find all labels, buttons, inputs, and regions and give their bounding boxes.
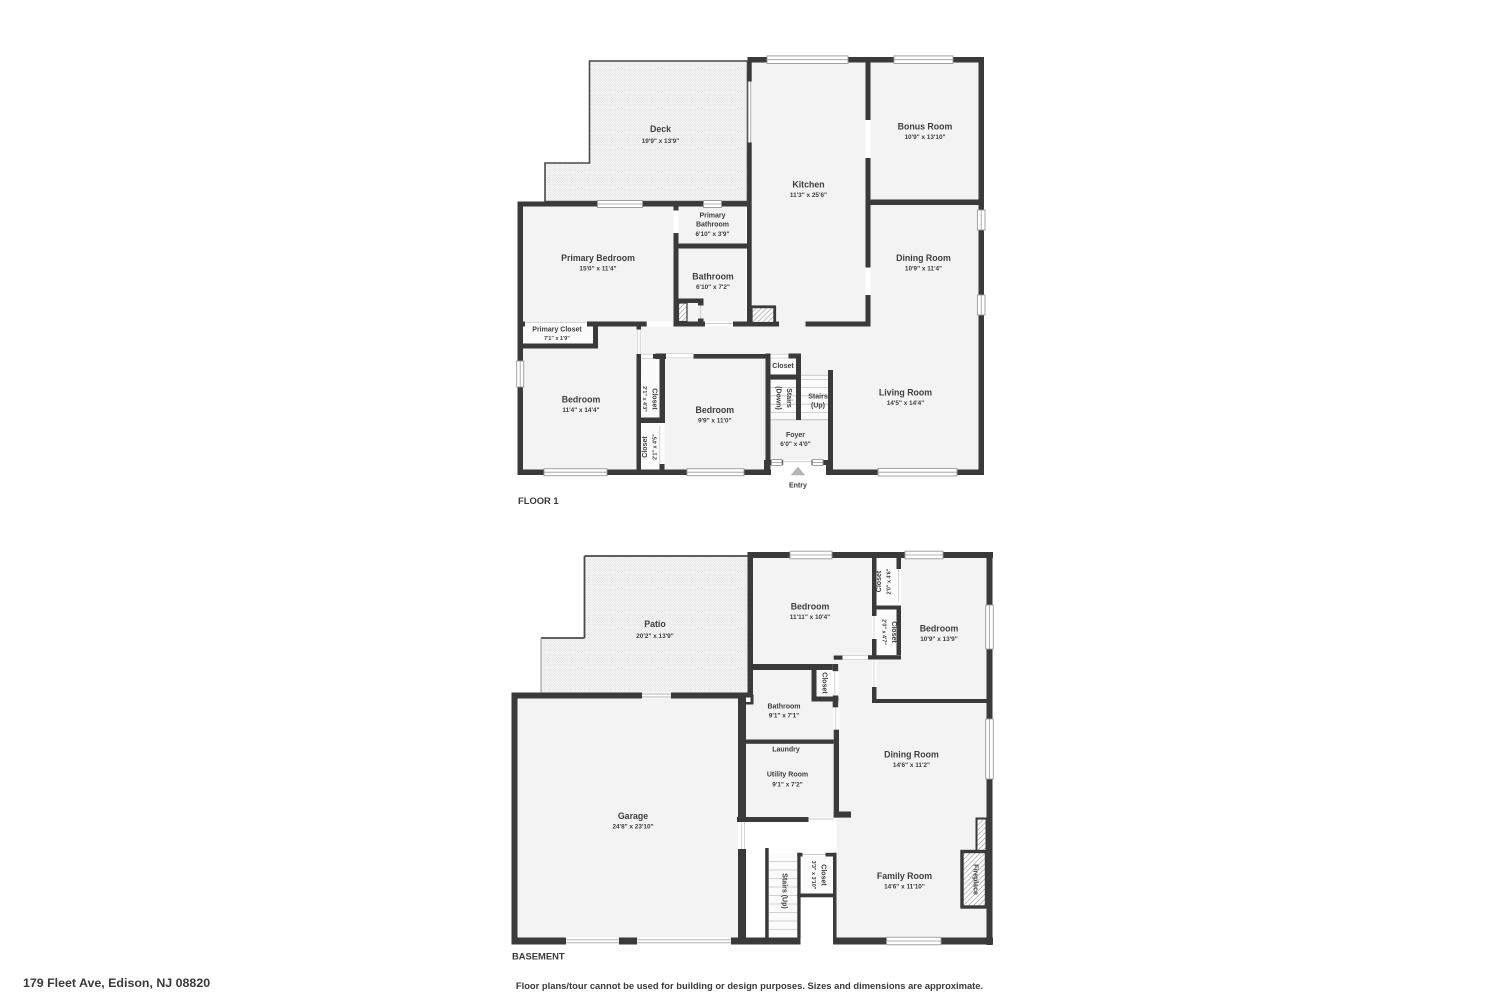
svg-text:Living Room: Living Room [879,388,932,398]
svg-text:Primary: Primary [699,213,725,220]
svg-text:Stairs (Up): Stairs (Up) [781,873,788,908]
svg-text:Primary Closet: Primary Closet [532,327,582,334]
svg-text:BASEMENT: BASEMENT [512,951,565,962]
svg-text:10'9" x 13'10": 10'9" x 13'10" [904,134,945,141]
svg-text:2'1" x 4'5": 2'1" x 4'5" [653,434,659,460]
svg-text:9'1" x 7'2": 9'1" x 7'2" [772,782,802,789]
svg-text:Floor plans/tour cannot be use: Floor plans/tour cannot be used for buil… [516,980,983,991]
svg-text:Closet: Closet [890,621,897,643]
svg-text:6'10" x 7'2": 6'10" x 7'2" [696,284,730,291]
svg-text:Closet: Closet [876,570,883,592]
svg-text:2'1" x 4'3": 2'1" x 4'3" [641,386,647,412]
svg-text:9'9" x 11'0": 9'9" x 11'0" [698,417,732,424]
svg-text:7'1" x 1'9": 7'1" x 1'9" [544,336,570,342]
svg-text:6'0" x 4'0": 6'0" x 4'0" [780,441,810,448]
svg-text:24'8" x 23'10": 24'8" x 23'10" [612,823,653,830]
svg-text:19'9" x 13'9": 19'9" x 13'9" [642,138,680,145]
svg-text:FLOOR 1: FLOOR 1 [518,495,559,506]
svg-text:Fireplace: Fireplace [972,864,979,895]
svg-text:Bedroom: Bedroom [791,602,830,612]
svg-text:Laundry: Laundry [772,747,800,754]
svg-text:11'4" x 14'4": 11'4" x 14'4" [562,407,599,414]
svg-text:Dining Room: Dining Room [884,750,939,760]
svg-text:Stairs: Stairs [785,388,792,408]
svg-text:Bedroom: Bedroom [562,395,601,405]
svg-text:2'0" x 4'6": 2'0" x 4'6" [887,568,893,594]
svg-text:20'2" x 13'9": 20'2" x 13'9" [636,633,674,640]
svg-text:Primary Bedroom: Primary Bedroom [561,253,635,263]
svg-text:Utility Room: Utility Room [767,772,808,779]
svg-text:Closet: Closet [642,436,649,458]
svg-text:Foyer: Foyer [786,432,805,439]
svg-text:179 Fleet Ave, Edison, NJ 0882: 179 Fleet Ave, Edison, NJ 08820 [23,976,210,990]
svg-text:Closet: Closet [772,363,794,370]
svg-text:Closet: Closet [820,864,827,886]
svg-text:Garage: Garage [618,811,648,821]
svg-text:Bonus Room: Bonus Room [898,122,953,132]
svg-text:Family Room: Family Room [877,871,932,881]
svg-text:14'5" x 14'4": 14'5" x 14'4" [887,400,925,407]
svg-text:11'11" x 10'4": 11'11" x 10'4" [790,614,830,621]
svg-text:Closet: Closet [821,672,828,694]
svg-text:Bathroom: Bathroom [696,222,729,229]
svg-text:Bedroom: Bedroom [695,405,734,415]
svg-text:Closet: Closet [651,388,658,410]
svg-text:Entry: Entry [789,483,807,490]
svg-text:Kitchen: Kitchen [792,180,824,190]
svg-text:14'6" x 11'10": 14'6" x 11'10" [884,883,925,890]
svg-text:14'6" x 11'2": 14'6" x 11'2" [893,762,930,769]
svg-text:11'3" x 25'6": 11'3" x 25'6" [790,192,827,199]
svg-text:3'3" x 3'10": 3'3" x 3'10" [810,861,816,890]
svg-text:9'1" x 7'1": 9'1" x 7'1" [769,713,799,720]
svg-text:Patio: Patio [644,619,666,629]
svg-text:10'9" x 11'4": 10'9" x 11'4" [905,265,942,272]
svg-text:Deck: Deck [650,124,671,134]
svg-text:Dining Room: Dining Room [896,253,951,263]
svg-text:Bathroom: Bathroom [767,704,800,711]
svg-text:Bathroom: Bathroom [692,272,734,282]
svg-text:10'9" x 13'9": 10'9" x 13'9" [920,636,958,643]
svg-text:(Up): (Up) [811,403,825,410]
svg-text:6'10" x 3'9": 6'10" x 3'9" [696,231,730,238]
svg-text:(Down): (Down) [775,386,782,410]
svg-text:15'0" x 11'4": 15'0" x 11'4" [579,265,616,272]
svg-text:Bedroom: Bedroom [920,624,959,634]
svg-text:2'0" x 4'7": 2'0" x 4'7" [881,619,887,645]
svg-text:Stairs: Stairs [808,393,828,400]
